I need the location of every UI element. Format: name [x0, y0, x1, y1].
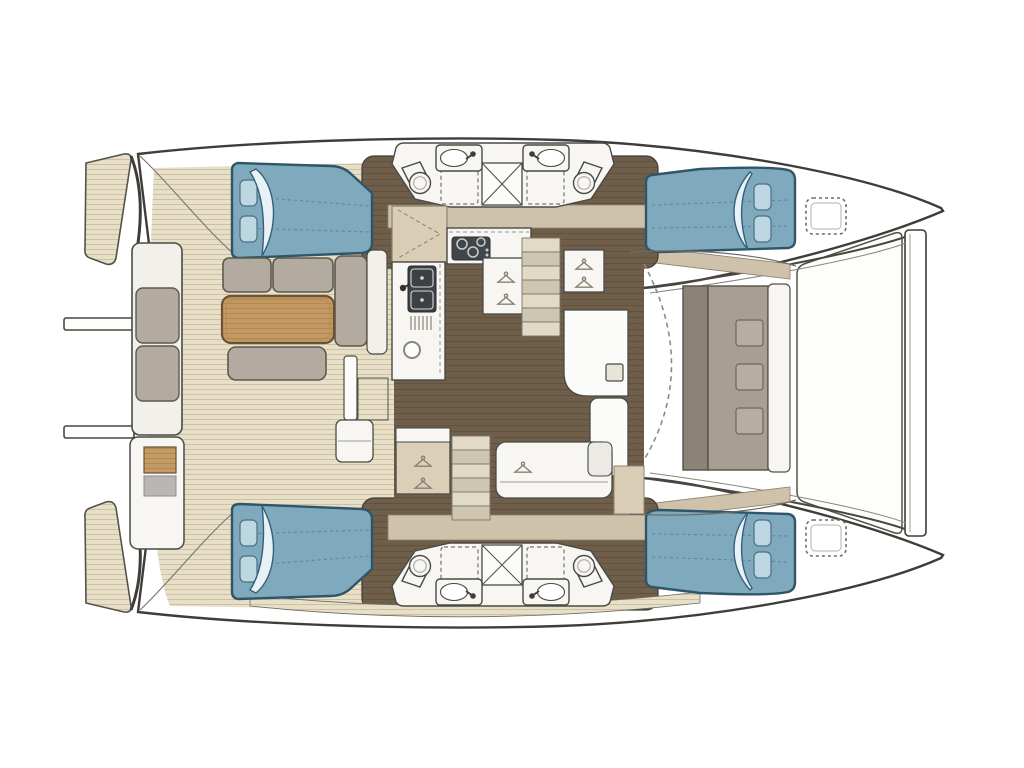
bed-pillow: [754, 216, 771, 242]
stern-wing-starboard: [85, 154, 131, 265]
stove-icon: [452, 237, 490, 260]
bow-hatch-port: [806, 520, 846, 556]
salon-fwd-wall-port: [614, 466, 644, 514]
bed-pillow: [240, 180, 257, 206]
floor-plan-canvas: [0, 0, 1024, 768]
sink-icon: [436, 579, 482, 605]
stairs-starboard: [522, 238, 560, 336]
cockpit-side-bench: [335, 256, 367, 346]
boarding-bar-lower: [64, 426, 134, 438]
settee-port: [496, 442, 612, 498]
door-swing-arc: [644, 264, 672, 460]
heads-port: [392, 543, 614, 606]
sink-icon: [436, 145, 482, 171]
bed-pillow: [240, 556, 257, 582]
stairs-port: [452, 436, 490, 520]
berth-aft-starboard: [232, 163, 372, 258]
bed-pillow: [240, 216, 257, 242]
cockpit-step-teak: [358, 378, 388, 420]
bed-pillow: [754, 520, 771, 546]
aft-bench: [132, 243, 182, 435]
cockpit-front-bench: [228, 347, 326, 380]
bed-pillow: [240, 520, 257, 546]
forward-crossbeam: [905, 230, 926, 536]
aft-bench-cushion: [136, 346, 179, 401]
fwd-cockpit-bench: [683, 284, 790, 472]
fwd-bench-cushion: [736, 364, 763, 390]
catamaran-floor-plan: [0, 0, 1024, 768]
bed-pillow: [754, 184, 771, 210]
fwd-bench-back: [683, 286, 708, 470]
galley-corner-cabinet: [392, 206, 447, 262]
locker-port: [396, 428, 450, 494]
nav-desk-knob: [606, 364, 623, 381]
fwd-bench-cushion: [736, 320, 763, 346]
wet-bar-wood-inset: [144, 447, 176, 473]
wet-bar-metal-inset: [144, 476, 176, 496]
sink-icon: [523, 579, 569, 605]
boarding-bar-upper: [64, 318, 134, 330]
berth-fwd-port: [646, 510, 795, 594]
settee-armrest: [588, 442, 612, 476]
berth-fwd-starboard: [646, 168, 795, 252]
salon-wall-band-fwd: [388, 515, 646, 540]
salon-door-leaf: [344, 356, 357, 420]
stern-wing-port: [85, 502, 131, 613]
heads-starboard: [392, 143, 614, 207]
cockpit-side-armrest: [367, 250, 387, 354]
bed-pillow: [754, 552, 771, 578]
locker-starboard-b: [564, 250, 604, 292]
bow-hatch-starboard: [806, 198, 846, 234]
cockpit-sofa-back-right: [273, 258, 333, 292]
fwd-bench-lip: [768, 284, 790, 472]
fwd-bench-cushion: [736, 408, 763, 434]
galley-round-basin: [404, 342, 420, 358]
aft-bench-cushion: [136, 288, 179, 343]
berth-aft-port: [232, 504, 372, 599]
trampoline: [797, 233, 902, 534]
companionway-steps: [336, 420, 373, 462]
cockpit-table: [222, 296, 334, 343]
cockpit-sofa-back-left: [223, 258, 271, 292]
sink-icon: [523, 145, 569, 171]
wet-bar: [130, 437, 184, 549]
